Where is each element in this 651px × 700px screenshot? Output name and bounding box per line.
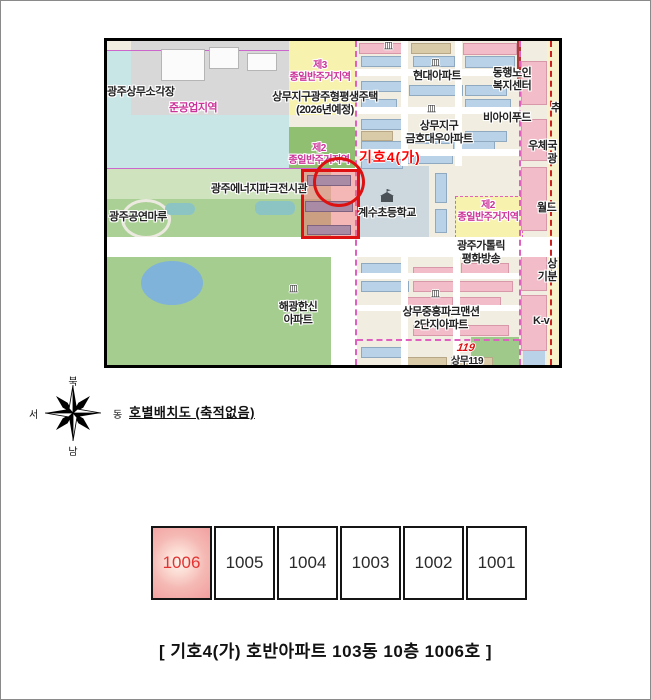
map-shape	[45, 409, 73, 413]
label-jungheung-park-apt: 상무중흥파크맨션 2단지아파트	[389, 306, 493, 332]
map-shape	[379, 189, 395, 203]
map-shape	[73, 413, 77, 441]
map-shape	[361, 131, 393, 141]
map-shape	[463, 43, 517, 55]
map-shape	[307, 225, 351, 235]
map-shape	[361, 56, 405, 67]
label-donghaeng-welfare: 동행노인 복지센터	[479, 67, 545, 93]
map-shape	[73, 385, 77, 413]
map-shape	[455, 41, 462, 166]
school-icon	[379, 189, 395, 208]
map-shape	[255, 201, 295, 215]
compass-south-label: 남	[23, 443, 123, 458]
map-shape	[45, 413, 73, 417]
unit-cell-1002: 1002	[403, 526, 464, 600]
building-icon: 皿	[289, 285, 298, 294]
unit-cell-1001: 1001	[466, 526, 527, 600]
label-hyundai-apt: 현대아파트	[401, 70, 473, 83]
label-performance-maru: 광주공연마루	[109, 211, 167, 224]
unit-row: 100610051004100310021001	[151, 526, 527, 600]
label-gyesu-elementary: 계수초등학교	[347, 207, 427, 220]
label-catholic-broadcast: 광주가톨릭 평화방송	[443, 240, 519, 266]
label-bi-food: 비아이푸드	[471, 112, 543, 125]
compass-west-label: 서	[29, 406, 38, 421]
label-partial-chu: 추	[551, 102, 561, 115]
label-zone2-residential-right: 제2 종일반주거지역	[451, 200, 525, 224]
compass: 북 남 서 동	[23, 373, 123, 455]
map-shape	[357, 339, 519, 341]
map-shape	[141, 261, 203, 305]
map-shape	[209, 47, 239, 69]
building-icon: 皿	[431, 59, 440, 68]
unit-cell-1003: 1003	[340, 526, 401, 600]
page: 기호4(가) 광주상무소각장준공업지역제3 종일반주거지역상무지구광주형평생주택…	[0, 0, 651, 700]
label-energy-park-hall: 광주에너지파크전시관	[195, 183, 323, 196]
map-shape	[247, 53, 277, 71]
label-zone3-residential: 제3 종일반주거지역	[283, 60, 357, 84]
unit-cell-1004: 1004	[277, 526, 338, 600]
map-shape	[69, 413, 73, 441]
label-partial-world: 월드	[537, 202, 556, 215]
map-shape	[73, 413, 101, 417]
compass-rose-icon	[45, 385, 101, 441]
map-shape	[407, 357, 447, 366]
fire-119-icon: 119	[456, 343, 475, 354]
compass-east-label: 동	[113, 406, 122, 421]
label-sangmu-119: 상무119	[451, 356, 483, 368]
label-haegwang-hanshin-apt: 해광한신 아파트	[263, 301, 333, 327]
label-partial-kv: K-v	[533, 315, 549, 328]
map-shape	[459, 281, 513, 292]
layout-title: 호별배치도 (축적없음)	[129, 402, 255, 421]
map-shape	[435, 209, 447, 233]
map-shape	[161, 49, 205, 81]
map-shape	[165, 203, 195, 215]
map-shape	[69, 385, 73, 413]
map-shape	[381, 196, 393, 202]
map-shape	[388, 189, 392, 191]
label-sangmu-housing-2026: 상무지구광주형평생주택 (2026년예정)	[253, 91, 397, 117]
location-map: 기호4(가) 광주상무소각장준공업지역제3 종일반주거지역상무지구광주형평생주택…	[104, 38, 562, 368]
unit-cell-1006: 1006	[151, 526, 212, 600]
label-partial-sang: 상 기분	[531, 258, 557, 284]
map-shape	[355, 273, 519, 279]
map-shape	[435, 173, 447, 203]
map-shape	[387, 189, 388, 193]
highlight-label: 기호4(가)	[359, 147, 421, 167]
building-icon: 皿	[427, 105, 436, 114]
building-icon: 皿	[431, 290, 440, 299]
label-semi-industrial-zone: 준공업지역	[169, 102, 217, 115]
label-post-office: 우체국 광	[527, 140, 557, 166]
map-shape	[73, 409, 101, 413]
highlight-circle	[313, 157, 365, 207]
label-incinerator: 광주상무소각장	[107, 86, 174, 99]
caption: [ 기호4(가) 호반아파트 103동 10층 1006호 ]	[1, 637, 650, 662]
map-shape	[107, 168, 331, 169]
map-shape	[359, 43, 407, 54]
map-shape	[411, 43, 451, 54]
unit-cell-1005: 1005	[214, 526, 275, 600]
building-icon: 皿	[384, 42, 393, 51]
